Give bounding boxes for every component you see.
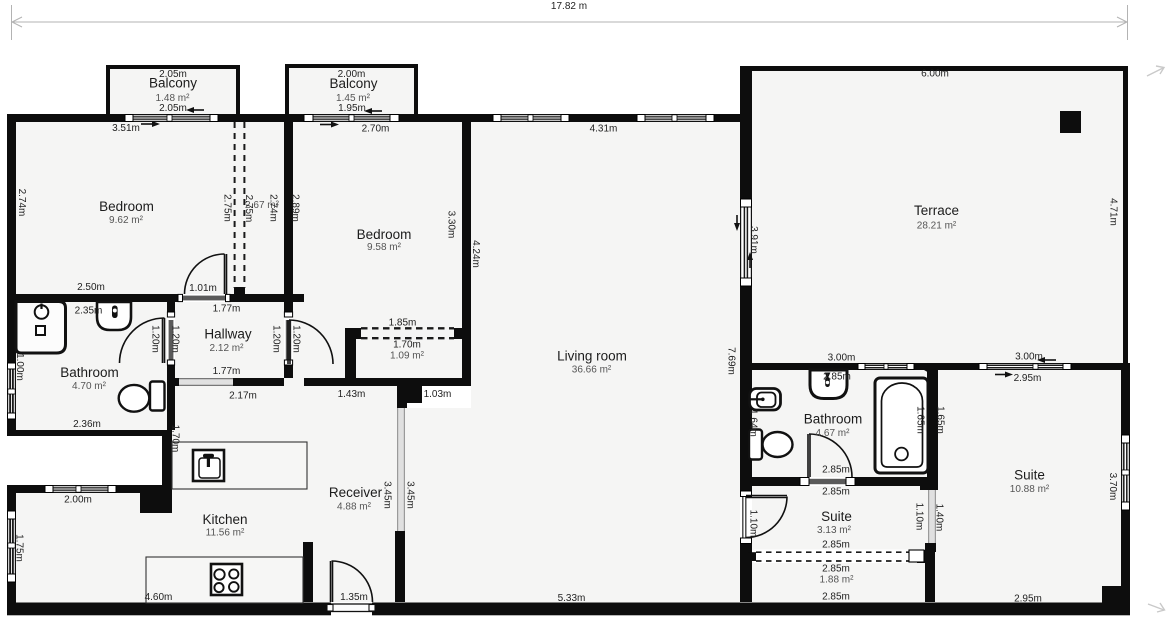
svg-text:1.70m: 1.70m (170, 425, 181, 453)
svg-text:4.88 m²: 4.88 m² (337, 502, 372, 513)
svg-text:7.69m: 7.69m (726, 347, 737, 375)
svg-text:1.35m: 1.35m (340, 592, 368, 603)
svg-text:3.70m: 3.70m (1107, 473, 1118, 501)
svg-text:1.85m: 1.85m (389, 318, 417, 329)
svg-text:1.00m: 1.00m (14, 353, 25, 381)
svg-text:1.01m: 1.01m (189, 283, 217, 294)
svg-text:Bathroom: Bathroom (60, 365, 119, 380)
svg-text:1.10m: 1.10m (914, 503, 925, 531)
svg-text:11.56 m²: 11.56 m² (206, 528, 245, 539)
svg-text:2.74m: 2.74m (16, 189, 27, 217)
svg-text:1.20m: 1.20m (291, 325, 302, 353)
svg-text:1.40m: 1.40m (934, 504, 945, 532)
svg-text:3.00m: 3.00m (828, 353, 856, 364)
svg-text:4.31m: 4.31m (590, 124, 618, 135)
svg-text:36.66 m²: 36.66 m² (572, 365, 612, 376)
svg-text:1.43m: 1.43m (338, 389, 366, 400)
svg-text:2.85m: 2.85m (822, 564, 850, 575)
svg-text:Suite: Suite (1014, 468, 1045, 483)
svg-text:4.71m: 4.71m (1108, 198, 1119, 226)
svg-text:1.88 m²: 1.88 m² (820, 575, 855, 586)
svg-text:2.70m: 2.70m (362, 124, 390, 135)
svg-text:Balcony: Balcony (149, 76, 197, 91)
svg-text:3.13 m²: 3.13 m² (817, 525, 852, 536)
svg-text:2.85m: 2.85m (822, 487, 850, 498)
svg-text:2.85m: 2.85m (822, 465, 850, 476)
svg-text:9.62 m²: 9.62 m² (109, 215, 144, 226)
svg-text:2.12 m²: 2.12 m² (210, 343, 245, 354)
svg-text:1.09 m²: 1.09 m² (390, 351, 425, 362)
svg-text:Bedroom: Bedroom (99, 199, 154, 214)
svg-text:1.70m: 1.70m (393, 340, 421, 351)
svg-text:1.20m: 1.20m (170, 325, 181, 353)
svg-text:1.10m: 1.10m (748, 510, 759, 538)
svg-text:4.60m: 4.60m (145, 592, 173, 603)
svg-text:2.85m: 2.85m (823, 372, 851, 383)
svg-text:2.35m: 2.35m (75, 306, 103, 317)
svg-text:2.75m: 2.75m (243, 195, 254, 223)
svg-text:Kitchen: Kitchen (202, 512, 247, 527)
svg-text:2.95m: 2.95m (1014, 373, 1042, 384)
svg-text:1.77m: 1.77m (213, 304, 241, 315)
svg-text:1.20m: 1.20m (150, 325, 161, 353)
svg-text:2.17m: 2.17m (229, 391, 257, 402)
svg-text:1.65m: 1.65m (915, 406, 926, 434)
svg-text:Balcony: Balcony (329, 76, 377, 91)
svg-text:Bathroom: Bathroom (804, 412, 863, 427)
svg-text:2.85m: 2.85m (822, 592, 850, 603)
svg-text:2.50m: 2.50m (77, 282, 105, 293)
svg-text:2.85m: 2.85m (822, 540, 850, 551)
svg-text:9.58 m²: 9.58 m² (367, 242, 402, 253)
svg-text:Suite: Suite (821, 509, 852, 524)
svg-text:5.33m: 5.33m (558, 593, 586, 604)
svg-text:Receiver: Receiver (329, 485, 383, 500)
svg-text:1.95m: 1.95m (338, 103, 366, 114)
svg-text:2.00m: 2.00m (64, 495, 92, 506)
svg-text:3.00m: 3.00m (1015, 352, 1043, 363)
svg-text:3.51m: 3.51m (112, 123, 140, 134)
svg-text:6.00m: 6.00m (921, 69, 949, 80)
svg-text:4.24m: 4.24m (470, 240, 481, 268)
svg-text:3.45m: 3.45m (405, 481, 416, 509)
svg-text:1.64m: 1.64m (748, 409, 759, 437)
svg-text:2.95m: 2.95m (1014, 594, 1042, 605)
svg-text:1.75m: 1.75m (14, 534, 25, 562)
svg-text:4.70 m²: 4.70 m² (72, 381, 107, 392)
svg-text:Hallway: Hallway (204, 327, 252, 342)
svg-text:4.67 m²: 4.67 m² (816, 428, 851, 439)
svg-text:1.20m: 1.20m (271, 325, 282, 353)
svg-text:1.03m: 1.03m (424, 389, 452, 400)
svg-text:3.91m: 3.91m (748, 226, 759, 254)
svg-text:1.77m: 1.77m (213, 366, 241, 377)
svg-text:Terrace: Terrace (914, 203, 959, 218)
svg-text:2.05m: 2.05m (159, 103, 187, 114)
svg-text:17.82 m: 17.82 m (551, 1, 587, 12)
svg-text:Living room: Living room (557, 349, 627, 364)
svg-text:1.65m: 1.65m (935, 406, 946, 434)
svg-text:2.89m: 2.89m (290, 194, 301, 222)
svg-text:28.21 m²: 28.21 m² (917, 221, 957, 232)
svg-text:2.36m: 2.36m (73, 419, 101, 430)
svg-text:3.30m: 3.30m (446, 211, 457, 239)
svg-text:10.88 m²: 10.88 m² (1010, 484, 1050, 495)
svg-text:2.74m: 2.74m (268, 194, 279, 222)
svg-text:2.75m: 2.75m (222, 194, 233, 222)
svg-text:3.45m: 3.45m (382, 481, 393, 509)
svg-text:Bedroom: Bedroom (357, 227, 412, 242)
